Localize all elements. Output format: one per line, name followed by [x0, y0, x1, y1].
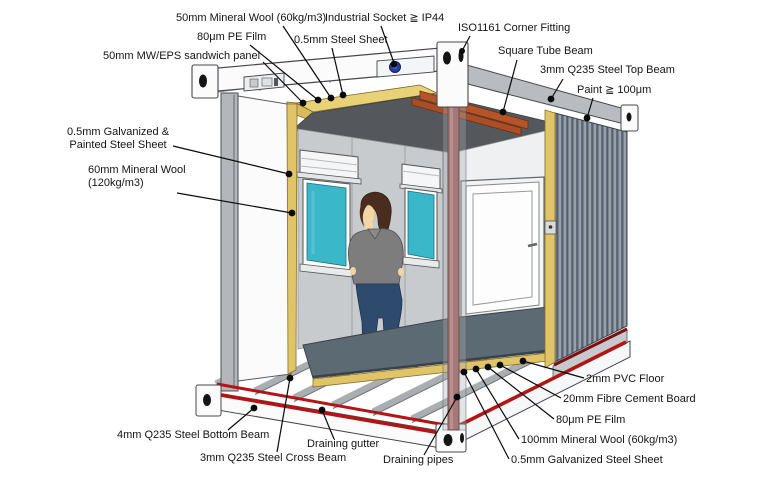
- wall-insulation-edge: [287, 104, 297, 374]
- label-steel-sheet-roof: 0.5mm Steel Sheet: [294, 34, 388, 47]
- entrance-door: [461, 177, 544, 319]
- label-draining-pipes: Draining pipes: [383, 454, 453, 467]
- corner-fitting-top-left: [192, 65, 218, 98]
- side-wall-insulation-edge: [545, 110, 555, 368]
- label-sandwich-panel: 50mm MW/EPS sandwich panel: [103, 50, 260, 63]
- label-pe-film-roof: 80μm PE Film: [197, 31, 266, 44]
- left-cutaway-wall: [221, 93, 297, 391]
- label-pvc-floor: 2mm PVC Floor: [586, 373, 664, 386]
- label-galvanized-steel-sheet: 0.5mm Galvanized Steel Sheet: [511, 454, 663, 467]
- window-right: [400, 164, 442, 268]
- label-steel-bottom-beam: 4mm Q235 Steel Bottom Beam: [117, 429, 269, 442]
- label-square-tube-beam: Square Tube Beam: [498, 45, 593, 58]
- label-galvanized-painted-sheet: 0.5mm Galvanized & Painted Steel Sheet: [60, 126, 176, 152]
- label-steel-top-beam: 3mm Q235 Steel Top Beam: [540, 64, 675, 77]
- label-mineral-wool-floor: 100mm Mineral Wool (60kg/m3): [521, 434, 677, 447]
- label-paint: Paint ≧ 100μm: [577, 84, 651, 97]
- label-draining-gutter: Draining gutter: [307, 438, 379, 451]
- corrugated-side-panel: [545, 110, 627, 380]
- door-keypad: [545, 221, 556, 234]
- draining-pipe: [448, 106, 459, 430]
- label-fibre-cement-board: 20mm Fibre Cement Board: [563, 393, 696, 406]
- diagram-stage: 50mm Mineral Wool (60kg/m3) Industrial S…: [0, 0, 768, 499]
- corner-post-left: [221, 93, 238, 391]
- label-corner-fitting: ISO1161 Corner Fitting: [458, 22, 570, 35]
- corner-fitting-bottom-left: [196, 385, 221, 416]
- label-steel-cross-beam: 3mm Q235 Steel Cross Beam: [200, 452, 346, 465]
- label-mineral-wool-roof: 50mm Mineral Wool (60kg/m3): [176, 12, 326, 25]
- corner-fitting-top-right-far: [621, 105, 638, 131]
- label-mineral-wool-wall: 60mm Mineral Wool (120kg/m3): [88, 164, 192, 190]
- label-pe-film-floor: 80μm PE Film: [556, 414, 625, 427]
- label-industrial-socket: Industrial Socket ≧ IP44: [325, 12, 444, 25]
